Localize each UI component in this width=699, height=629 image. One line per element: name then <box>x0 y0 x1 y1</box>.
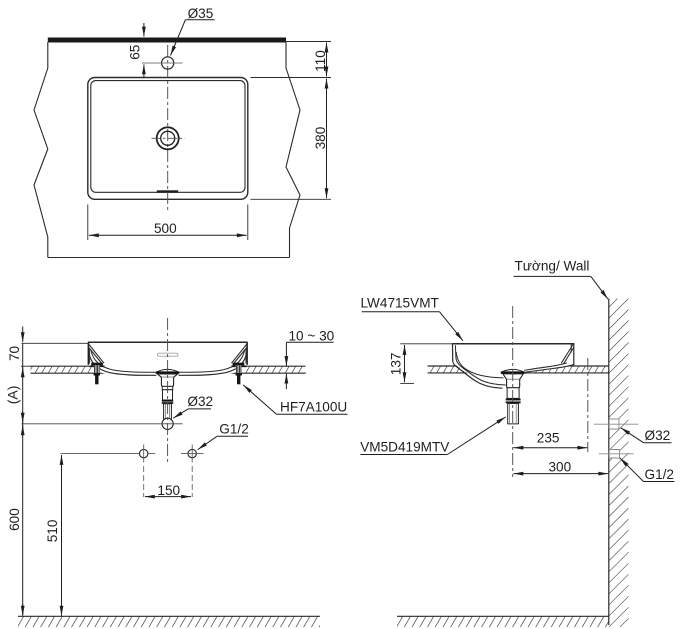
svg-text:150: 150 <box>157 483 180 498</box>
svg-text:G1/2: G1/2 <box>219 421 248 436</box>
svg-text:Ø35: Ø35 <box>188 6 214 21</box>
svg-text:70: 70 <box>7 345 22 361</box>
svg-text:Ø32: Ø32 <box>187 394 213 409</box>
svg-text:10 ~ 30: 10 ~ 30 <box>289 328 335 343</box>
svg-text:137: 137 <box>388 353 403 376</box>
svg-text:300: 300 <box>549 459 572 474</box>
svg-text:235: 235 <box>537 431 560 446</box>
svg-text:HF7A100U: HF7A100U <box>280 399 347 414</box>
svg-text:Ø32: Ø32 <box>645 428 671 443</box>
svg-text:510: 510 <box>45 519 60 542</box>
svg-text:VM5D419MTV: VM5D419MTV <box>360 439 449 454</box>
svg-text:LW4715VMT: LW4715VMT <box>361 296 439 311</box>
svg-text:Tường/ Wall: Tường/ Wall <box>515 259 590 274</box>
svg-text:G1/2: G1/2 <box>645 467 674 482</box>
svg-text:65: 65 <box>127 45 142 60</box>
svg-text:380: 380 <box>313 126 328 149</box>
svg-text:600: 600 <box>7 508 22 531</box>
svg-text:110: 110 <box>313 50 328 72</box>
svg-text:(A): (A) <box>5 386 21 405</box>
svg-text:500: 500 <box>154 221 177 236</box>
